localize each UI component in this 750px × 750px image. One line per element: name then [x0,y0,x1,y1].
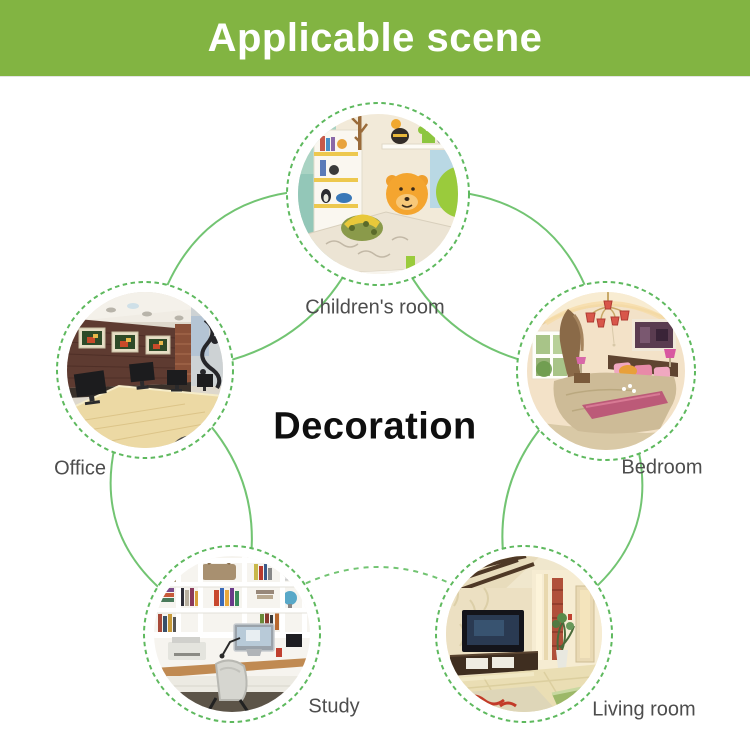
scene-label-childrens-room: Children's room [305,297,444,320]
scene-childrens-room [287,103,488,286]
header-banner: Applicable scene [0,0,750,77]
scene-label-study: Study [308,696,359,719]
imac [234,624,274,656]
center-label: Decoration [273,406,476,449]
scene-label-office: Office [54,458,106,481]
side-monitor [286,634,302,647]
scene-bedroom [517,282,695,460]
bear-plush [386,173,428,215]
applicable-scene-infographic: Applicable scene Decoration Children's r… [0,0,750,750]
header-title: Applicable scene [208,16,543,61]
scene-study [144,546,320,722]
scene-label-bedroom: Bedroom [621,457,702,480]
scene-office [57,282,233,458]
scene-living-room [436,546,612,722]
scene-diagram [0,0,750,750]
study-photo [154,556,310,712]
living-room-photo [446,556,602,712]
tv [462,610,524,652]
red-cup [276,648,282,657]
scene-label-living-room: Living room [592,699,695,722]
bedroom-photo [527,291,685,450]
